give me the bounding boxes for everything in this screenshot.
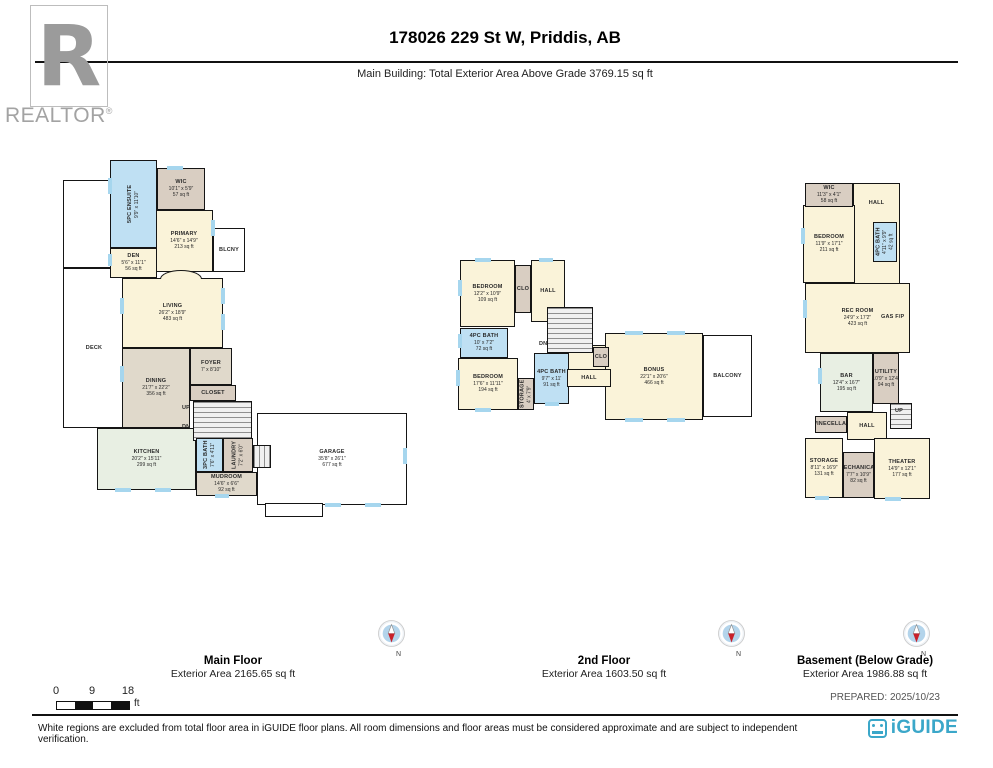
header-divider [35, 61, 958, 63]
room-label: WIC [823, 185, 834, 192]
floor-name: Main Floor [113, 655, 353, 667]
scale-bar-segments [56, 701, 130, 710]
room-label: LAUNDRY [231, 441, 238, 469]
room-label: BLCNY [219, 247, 239, 254]
room-den: DEN5'6" x 11'1"56 sq ft [110, 248, 157, 278]
room-area: 466 sq ft [644, 380, 663, 386]
room-label: DINING [146, 378, 166, 385]
footer-disclaimer: White regions are excluded from total fl… [38, 723, 818, 745]
window-marker [625, 418, 643, 422]
room-closet: CLOSET [190, 385, 236, 401]
basement-plan: HALL BEDROOM11'9" x 17'1"211 sq ft WIC11… [795, 178, 935, 503]
scale-tick-9: 9 [82, 685, 102, 697]
room-label: UP [182, 405, 190, 412]
compass-icon [378, 620, 405, 647]
room-label: LIVING [163, 303, 183, 310]
prepared-date: PREPARED: 2025/10/23 [830, 692, 940, 703]
realtor-wordmark: REALTOR® [5, 104, 125, 128]
scale-segment [57, 702, 75, 709]
gas-fireplace-label: GAS F/P [881, 314, 904, 321]
room-label: MECHANICAL [843, 465, 874, 472]
room-bath-1: 4PC BATH10' x 7'2"72 sq ft [460, 328, 508, 358]
window-marker [625, 331, 643, 335]
room-area: 92 sq ft [218, 487, 234, 493]
realtor-wordmark-text: REALTOR [5, 104, 106, 127]
stairs-up-label: UP [182, 405, 190, 412]
room-bar: BAR12'4" x 16'7"195 sq ft [820, 353, 873, 412]
window-marker [115, 488, 131, 492]
window-marker [801, 228, 805, 244]
window-marker [108, 178, 112, 194]
room-area: 483 sq ft [163, 316, 182, 322]
window-marker [108, 254, 112, 266]
room-area: 56 sq ft [125, 266, 141, 272]
room-label: DN [182, 424, 190, 431]
room-bedroom-1: BEDROOM12'2" x 10'9"109 sq ft [460, 260, 515, 327]
basement-caption: Basement (Below Grade) Exterior Area 198… [745, 655, 985, 680]
room-label: HALL [540, 288, 555, 295]
room-area: 91 sq ft [543, 382, 559, 388]
window-marker [667, 418, 685, 422]
room-hall-lower: HALL [567, 369, 611, 387]
window-marker [456, 370, 460, 386]
realtor-logo: R [30, 5, 108, 107]
scale-tick-0: 0 [46, 685, 66, 697]
room-bedroom-2: BEDROOM17'6" x 11'11"194 sq ft [458, 358, 518, 410]
room-bath-2: 4PC BATH9'7" x 11'91 sq ft [534, 353, 569, 404]
room-label: 3PC BATH [203, 441, 210, 470]
floor-name: Basement (Below Grade) [745, 655, 985, 667]
room-area: 131 sq ft [814, 471, 833, 477]
room-mudroom: MUDROOM14'6" x 6'6"92 sq ft [196, 472, 257, 496]
window-marker [325, 503, 341, 507]
floor-area: Exterior Area 1986.88 sq ft [745, 668, 985, 680]
room-label: REC ROOM [842, 308, 874, 315]
floor-area: Exterior Area 1603.50 sq ft [484, 668, 724, 680]
room-area: 356 sq ft [146, 391, 165, 397]
room-label: 4PC BATH [537, 369, 566, 376]
iguide-brand: iGUIDE [868, 717, 958, 739]
room-bath-basement: 4PC BATH4'11" x 9'9"42 sq ft [873, 222, 897, 262]
floorplan-sheet: { "header": { "realtor_logo_letter": "R"… [0, 0, 993, 768]
room-label: CLO [517, 286, 529, 293]
room-label: BEDROOM [473, 374, 503, 381]
room-label: WINECELLAR [815, 421, 847, 428]
compass-icon [718, 620, 745, 647]
room-label: HALL [859, 423, 874, 430]
compass-icon [903, 620, 930, 647]
room-label: CLOSET [201, 390, 225, 397]
room-label: GARAGE [319, 449, 344, 456]
registered-mark: ® [106, 106, 113, 116]
room-area: 211 sq ft [820, 247, 839, 253]
room-dims: 4' x 7'9" [526, 385, 532, 402]
window-marker [167, 166, 183, 170]
compass-second: N [717, 620, 745, 658]
window-marker [155, 488, 171, 492]
room-utility: UTILITY10'9" x 12'4"94 sq ft [873, 353, 899, 404]
window-marker [818, 368, 822, 384]
room-closet-2: CLO [593, 347, 609, 367]
window-marker [120, 366, 124, 382]
stairs-basement [890, 403, 912, 429]
window-marker [803, 300, 807, 318]
room-label: WIC [175, 179, 186, 186]
room-area: 72 sq ft [476, 346, 492, 352]
floor-name: 2nd Floor [484, 655, 724, 667]
room-area: 94 sq ft [878, 382, 894, 388]
page-title: 178026 229 St W, Priddis, AB [115, 28, 895, 48]
room-area: 82 sq ft [850, 478, 866, 484]
iguide-wordmark: iGUIDE [891, 717, 958, 739]
window-marker [475, 408, 491, 412]
room-label: BEDROOM [814, 234, 844, 241]
room-label: DEN [127, 253, 139, 260]
room-garage: GARAGE35'8" x 26'1"677 sq ft [257, 413, 407, 505]
room-storage-2f: STORAGE4' x 7'9" [518, 378, 534, 410]
floor-area: Exterior Area 2165.65 sq ft [113, 668, 353, 680]
room-storage-basement: STORAGE8'11" x 16'9"131 sq ft [805, 438, 843, 498]
room-label: DN [539, 341, 547, 348]
room-area: 194 sq ft [478, 387, 497, 393]
room-area: 299 sq ft [137, 462, 156, 468]
room-label: STORAGE [810, 458, 839, 465]
room-label: BALCONY [713, 373, 742, 380]
room-ensuite: 5PC ENSUITE9'9" x 11'10" [110, 160, 157, 248]
window-marker [215, 494, 229, 498]
room-mechanical: MECHANICAL7'7" x 10'9"82 sq ft [843, 452, 874, 498]
room-winecellar: WINECELLAR [815, 416, 847, 433]
main-floor-plan: DECK GARAGE35'8" x 26'1"677 sq ft LIVING… [55, 148, 420, 528]
room-area: 58 sq ft [821, 198, 837, 204]
stairs-dn-label: DN [182, 424, 190, 431]
scale-segment [111, 702, 129, 709]
room-bath-main: 3PC BATH7'6" x 4'11" [196, 438, 223, 472]
second-floor-plan: BEDROOM12'2" x 10'9"109 sq ft HALL BONUS… [455, 250, 765, 435]
window-marker [458, 280, 462, 296]
scale-unit: ft [134, 698, 140, 709]
room-label: GAS F/P [881, 314, 904, 321]
scale-tick-18: 18 [118, 685, 138, 697]
window-marker [458, 334, 462, 348]
room-living: LIVING26'2" x 18'9"483 sq ft [122, 278, 223, 348]
stairs-dn-label: DN [539, 341, 547, 348]
scale-segment [93, 702, 111, 709]
room-hall-basement-lower: HALL [847, 412, 887, 440]
room-label: BAR [840, 373, 853, 380]
window-marker [221, 314, 225, 330]
room-label: HALL [581, 375, 596, 382]
room-area: 57 sq ft [173, 192, 189, 198]
footer-divider [32, 714, 958, 716]
room-dims: 9'9" x 11'10" [134, 190, 140, 217]
stairs-second [547, 307, 593, 353]
room-label: 5PC ENSUITE [127, 185, 134, 223]
window-marker [475, 258, 491, 262]
room-deck: DECK [63, 268, 125, 428]
room-label: THEATER [889, 459, 916, 466]
room-dining: DINING21'7" x 22'2"356 sq ft [122, 348, 190, 428]
room-dims: 7'2" x 6'0" [238, 444, 244, 466]
garage-step [265, 503, 323, 517]
room-primary: PRIMARY14'6" x 14'9"213 sq ft [155, 210, 213, 272]
room-label: KITCHEN [134, 449, 160, 456]
main-floor-caption: Main Floor Exterior Area 2165.65 sq ft [113, 655, 353, 680]
room-label: FOYER [201, 360, 221, 367]
room-label: UP [895, 408, 903, 415]
room-label: PRIMARY [171, 231, 198, 238]
room-foyer: FOYER7' x 8'10" [190, 348, 232, 385]
room-wic-basement: WIC11'3" x 4'1"58 sq ft [805, 183, 853, 207]
room-label: DECK [86, 345, 102, 352]
room-bonus: BONUS22'1" x 20'6"466 sq ft [605, 333, 703, 420]
room-theater: THEATER14'9" x 12'1"177 sq ft [874, 438, 930, 499]
room-label: MUDROOM [211, 474, 242, 481]
compass-n-label: N [377, 651, 405, 658]
window-marker [120, 298, 124, 314]
room-area: 109 sq ft [478, 297, 497, 303]
room-area: 177 sq ft [892, 472, 911, 478]
window-marker [211, 220, 215, 236]
room-area: 423 sq ft [848, 321, 867, 327]
stairs-main [193, 401, 252, 441]
realtor-logo-letter: R [37, 8, 102, 104]
entry-steps [253, 445, 271, 468]
room-dims: 7' x 8'10" [201, 367, 221, 373]
compass-main: N [377, 620, 405, 658]
window-marker [545, 402, 559, 406]
room-wic: WIC10'1" x 5'9"57 sq ft [157, 168, 205, 210]
room-label: HALL [869, 200, 884, 207]
room-label: STORAGE [519, 380, 526, 409]
window-marker [365, 503, 381, 507]
room-label: UTILITY [875, 369, 897, 376]
room-label: 4PC BATH [470, 333, 499, 340]
room-closet-1: CLO [515, 265, 531, 313]
window-marker [221, 288, 225, 304]
second-floor-caption: 2nd Floor Exterior Area 1603.50 sq ft [484, 655, 724, 680]
room-area: 213 sq ft [174, 244, 193, 250]
room-label: CLO [595, 354, 607, 361]
scale-segment [75, 702, 93, 709]
room-label: BEDROOM [472, 284, 502, 291]
room-label: 4PC BATH [875, 228, 882, 257]
iguide-icon [868, 719, 887, 738]
room-area: 42 sq ft [888, 234, 894, 250]
room-area: 195 sq ft [837, 386, 856, 392]
page-subtitle: Main Building: Total Exterior Area Above… [115, 68, 895, 80]
room-laundry: LAUNDRY7'2" x 6'0" [223, 438, 253, 472]
compass-basement: N [902, 620, 930, 658]
window-marker [815, 496, 829, 500]
room-area: 677 sq ft [322, 462, 341, 468]
window-marker [885, 497, 901, 501]
room-balcony-main: BLCNY [213, 228, 245, 272]
stairs-up-label: UP [895, 408, 903, 415]
room-dims: 7'6" x 4'11" [210, 443, 216, 467]
room-bedroom-basement: BEDROOM11'9" x 17'1"211 sq ft [803, 205, 855, 283]
room-balcony: BALCONY [703, 335, 752, 417]
window-marker [403, 448, 407, 464]
window-marker [667, 331, 685, 335]
room-label: BONUS [644, 367, 665, 374]
room-kitchen: KITCHEN20'2" x 15'11"299 sq ft [97, 428, 196, 490]
window-marker [539, 258, 553, 262]
